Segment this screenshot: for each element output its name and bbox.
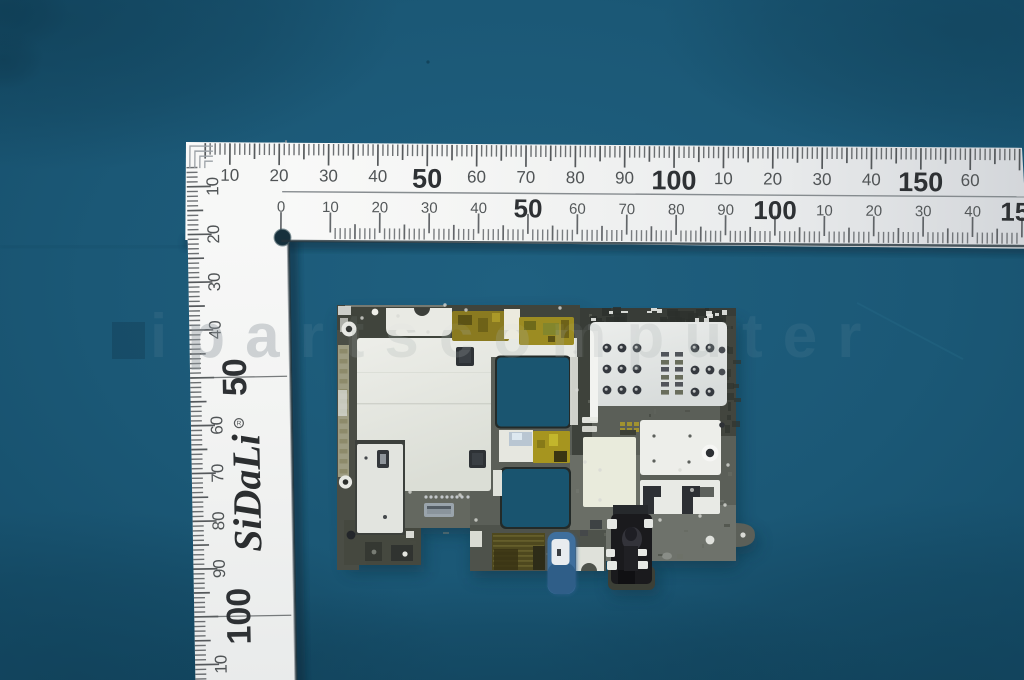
svg-text:40: 40 — [964, 203, 981, 220]
svg-text:30: 30 — [421, 200, 438, 217]
svg-text:90: 90 — [717, 202, 734, 219]
svg-text:80: 80 — [668, 201, 685, 218]
svg-text:40: 40 — [862, 170, 881, 189]
svg-text:150: 150 — [1000, 197, 1024, 227]
svg-text:20: 20 — [270, 166, 289, 185]
svg-text:20: 20 — [204, 225, 223, 244]
svg-text:100: 100 — [651, 165, 696, 195]
svg-text:90: 90 — [210, 559, 229, 578]
svg-text:30: 30 — [205, 272, 224, 291]
svg-text:30: 30 — [915, 203, 932, 220]
svg-text:30: 30 — [813, 170, 832, 189]
svg-text:60: 60 — [569, 201, 586, 218]
svg-text:10: 10 — [816, 202, 833, 219]
svg-text:20: 20 — [763, 170, 782, 189]
svg-text:40: 40 — [470, 200, 487, 217]
svg-text:50: 50 — [513, 193, 542, 223]
svg-text:150: 150 — [898, 167, 943, 197]
svg-text:100: 100 — [753, 195, 797, 225]
svg-text:80: 80 — [566, 168, 585, 187]
svg-text:20: 20 — [371, 199, 388, 216]
svg-text:90: 90 — [615, 168, 634, 187]
svg-text:30: 30 — [319, 166, 338, 185]
svg-text:60: 60 — [467, 167, 486, 186]
svg-text:R: R — [237, 420, 242, 427]
svg-text:10: 10 — [211, 655, 230, 674]
svg-text:60: 60 — [207, 416, 226, 435]
svg-text:10: 10 — [322, 199, 339, 216]
svg-text:60: 60 — [961, 171, 980, 190]
svg-text:50: 50 — [412, 164, 442, 194]
svg-text:100: 100 — [220, 587, 259, 644]
svg-text:SiDaLi: SiDaLi — [223, 434, 270, 553]
svg-text:70: 70 — [516, 168, 535, 187]
svg-text:10: 10 — [220, 166, 239, 185]
svg-text:10: 10 — [714, 169, 733, 188]
svg-text:20: 20 — [865, 203, 882, 220]
svg-text:0: 0 — [277, 199, 285, 216]
svg-text:70: 70 — [618, 201, 635, 218]
svg-text:40: 40 — [368, 167, 387, 186]
